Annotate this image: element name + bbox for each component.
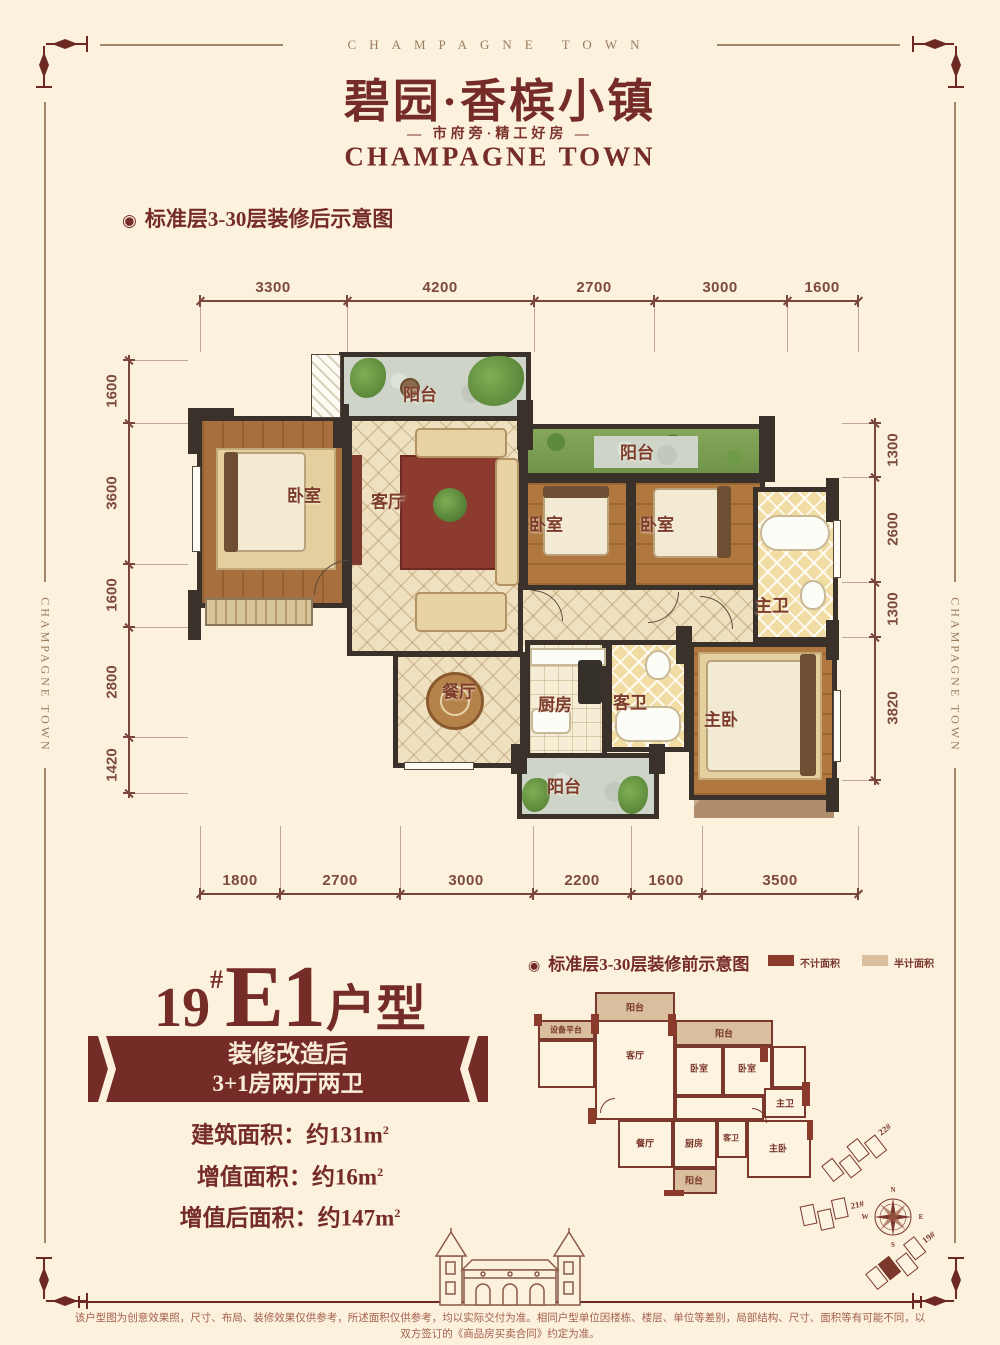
area-value: 约131m (306, 1123, 383, 1148)
frame-left-line-bottom (44, 768, 46, 1243)
room-label-balcony-top: 阳台 (403, 381, 437, 406)
unit-hash: # (210, 965, 223, 995)
area-value: 约16m (312, 1164, 377, 1189)
dim-label: 2700 (322, 872, 357, 889)
area-sup: 2 (383, 1123, 389, 1137)
dim-tick (869, 779, 881, 781)
before-label-master-bedroom: 主卧 (769, 1142, 787, 1155)
before-corridor (772, 1046, 806, 1088)
dim-extension (134, 627, 188, 628)
dim-label: 2800 (104, 665, 121, 698)
tv-cabinet-illustration (352, 455, 362, 565)
dim-extension (134, 423, 188, 424)
dim-label: 3000 (702, 279, 737, 296)
corner-ornament-bottom-left (30, 1245, 100, 1315)
window-symbol (833, 520, 841, 578)
bullet-icon: ◉ (528, 959, 540, 974)
after-plan-section-title: ◉标准层3-30层装修后示意图 (122, 203, 393, 233)
bathtub-illustration (760, 515, 830, 551)
dim-label: 2200 (564, 872, 599, 889)
before-hall (675, 1096, 764, 1120)
dim-extension (134, 564, 188, 565)
unit-code: E1 (225, 964, 324, 1033)
master-bedroom-marble-strip (694, 798, 834, 818)
room-label-master-bath: 主卫 (755, 592, 789, 617)
dim-extension (858, 306, 859, 352)
frame-left-line-top (44, 102, 46, 582)
area-label: 建筑面积： (191, 1123, 306, 1148)
dim-extension (200, 306, 201, 352)
window-symbol (833, 690, 841, 762)
dim-extension (200, 826, 201, 888)
unit-type-suffix: 户型 (326, 986, 426, 1034)
dim-extension (533, 826, 534, 888)
dim-extension (842, 582, 870, 583)
dim-label: 1600 (104, 374, 121, 407)
dim-label: 1600 (804, 279, 839, 296)
dim-tick (532, 888, 534, 900)
legend-swatch-no-area (768, 955, 794, 966)
dim-label: 1600 (104, 578, 121, 611)
dim-label: 3600 (104, 476, 121, 509)
area-row: 建筑面积：约131m2 (100, 1112, 480, 1154)
room-label-bedroom-right: 卧室 (640, 511, 674, 536)
building-unit (800, 1204, 818, 1226)
dim-extension (134, 737, 188, 738)
room-label-master-bedroom: 主卧 (704, 706, 738, 731)
stove-illustration (578, 660, 602, 704)
project-tagline: — 市府旁·精工好房 — (407, 123, 593, 143)
before-wall-piece (668, 1014, 676, 1036)
sofa-illustration (415, 592, 507, 632)
compass-s: S (891, 1241, 895, 1249)
window-symbol (404, 762, 474, 770)
room-label-kitchen: 厨房 (538, 691, 572, 716)
room-label-living: 客厅 (371, 488, 405, 513)
dim-extension (534, 306, 535, 352)
banner-line2: 3+1房两厅两卫 (212, 1070, 363, 1098)
before-wall-piece (534, 1014, 542, 1026)
before-wall-piece (802, 1082, 810, 1106)
dim-label: 1800 (222, 872, 257, 889)
before-label-balcony-bottom: 阳台 (685, 1174, 703, 1187)
dim-extension (787, 306, 788, 352)
dim-tick (630, 888, 632, 900)
dim-tick (701, 888, 703, 900)
area-info: 建筑面积：约131m2 增值面积：约16m2 增值后面积：约147m2 (100, 1112, 480, 1237)
wall-pier (649, 744, 665, 774)
dim-extension (654, 306, 655, 352)
dim-extension (134, 793, 188, 794)
room-label-bedroom-middle: 卧室 (529, 511, 563, 536)
toilet-illustration (800, 580, 826, 610)
dim-extension (842, 477, 870, 478)
wardrobe-illustration (205, 598, 313, 626)
compass-e: E (919, 1213, 924, 1221)
wall-pier (759, 416, 775, 482)
wall-pier (188, 408, 201, 454)
after-plan-section-label: 标准层3-30层装修后示意图 (145, 207, 394, 231)
legend-label-no-area: 不计面积 (800, 955, 840, 970)
building-label: 22# (876, 1121, 893, 1137)
sofa-illustration (415, 428, 507, 458)
dim-line-top (200, 300, 858, 302)
unit-title: 19 # E1 户型 (95, 955, 485, 1033)
room-label-dining: 餐厅 (442, 678, 476, 703)
dim-extension (631, 826, 632, 888)
before-side-space (538, 1040, 595, 1088)
wall-pier (826, 478, 839, 522)
legend-swatch-half-area (862, 955, 888, 966)
room-label-bedroom-left: 卧室 (287, 482, 321, 507)
corner-ornament-top-left (30, 30, 100, 100)
building-cluster-21: 21# (799, 1194, 866, 1227)
dim-label: 1600 (648, 872, 683, 889)
project-subtitle-en: CHAMPAGNE TOWN (344, 142, 655, 173)
headboard-illustration (717, 486, 731, 558)
area-sup: 2 (394, 1206, 400, 1220)
building-unit (817, 1208, 835, 1230)
before-label-bedroom-b: 卧室 (738, 1062, 756, 1075)
bullet-icon: ◉ (122, 211, 137, 230)
castle-illustration (420, 1228, 600, 1311)
frame-right-line-top (954, 102, 956, 582)
frame-top-line-right (717, 44, 900, 46)
before-label-balcony-right: 阳台 (715, 1027, 733, 1040)
dim-label: 1300 (885, 592, 902, 625)
dim-label: 3820 (885, 691, 902, 724)
legend-label-half-area: 半计面积 (894, 955, 934, 970)
dim-extension (858, 826, 859, 888)
dim-tick (869, 636, 881, 638)
sofa-illustration (495, 458, 519, 586)
wall-pier (517, 400, 533, 450)
room-label-guest-bath: 客卫 (613, 689, 647, 714)
room-label-balcony-right: 阳台 (620, 439, 654, 464)
footer-rule-cap-left (78, 1296, 80, 1308)
wall-pier (188, 590, 201, 640)
corner-ornament-top-right (900, 30, 970, 100)
before-plan-section-label: 标准层3-30层装修前示意图 (548, 955, 749, 974)
wall-pier (676, 626, 692, 664)
dim-extension (842, 423, 870, 424)
before-label-kitchen: 厨房 (685, 1137, 703, 1150)
area-row: 增值面积：约16m2 (100, 1154, 480, 1196)
dim-tick (279, 888, 281, 900)
before-label-living: 客厅 (626, 1049, 644, 1062)
plant-illustration (433, 488, 467, 522)
compass-w: W (862, 1213, 869, 1221)
before-label-equipment: 设备平台 (550, 1025, 582, 1036)
building-label: 19# (920, 1229, 937, 1245)
dim-extension (400, 826, 401, 888)
room-label-balcony-bottom: 阳台 (547, 773, 581, 798)
before-wall-piece (591, 1014, 599, 1034)
building-label: 21# (850, 1198, 865, 1211)
wall-pier (511, 744, 527, 774)
footer-rule-cap-right (920, 1296, 922, 1308)
dim-tick (869, 476, 881, 478)
frame-banner-text: CHAMPAGNE TOWN (348, 37, 653, 53)
building-cluster-22: 22# (820, 1117, 896, 1182)
dim-tick (869, 581, 881, 583)
wall-pier (826, 778, 839, 812)
before-label-guest-bath: 客卫 (723, 1133, 739, 1144)
frame-top-line-left (100, 44, 283, 46)
disclaimer-text: 该户型图为创意效果照，尺寸、布局、装修效果仅供参考，所述面积仅供参考，均以实际交… (70, 1311, 930, 1343)
dim-label: 2600 (885, 512, 902, 545)
before-plan-section-title: ◉标准层3-30层装修前示意图 (528, 950, 749, 975)
dim-line-bottom (200, 893, 858, 895)
dim-extension (280, 826, 281, 888)
dim-extension (134, 360, 188, 361)
before-wall-piece (760, 1046, 768, 1062)
wall-pier (826, 620, 839, 660)
dim-tick (869, 422, 881, 424)
dim-label: 3500 (762, 872, 797, 889)
compass-rose-icon (871, 1195, 915, 1239)
before-label-bedroom-a: 卧室 (690, 1062, 708, 1075)
project-title: 碧园·香槟小镇 (344, 65, 656, 131)
dim-extension (842, 637, 870, 638)
frame-side-text-left: CHAMPAGNE TOWN (38, 597, 53, 752)
dim-line-right (874, 418, 876, 785)
dim-label: 4200 (422, 279, 457, 296)
dim-label: 3300 (255, 279, 290, 296)
frame-side-text-right: CHAMPAGNE TOWN (948, 597, 963, 752)
dim-label: 1420 (104, 748, 121, 781)
headboard-illustration (800, 654, 816, 776)
compass-n: N (890, 1186, 895, 1194)
dim-tick (399, 888, 401, 900)
dim-extension (347, 306, 348, 352)
poster-page: CHAMPAGNE TOWN CHAMPAGNE TOWN CHAMPAGNE … (0, 0, 1000, 1345)
dim-label: 1300 (885, 433, 902, 466)
headboard-illustration (543, 486, 609, 498)
toilet-illustration (645, 650, 671, 680)
area-value: 约147m (318, 1206, 395, 1231)
dim-extension (702, 826, 703, 888)
before-wall-piece (807, 1120, 813, 1140)
dim-extension (842, 780, 870, 781)
dim-tick (857, 888, 859, 900)
before-label-balcony-top: 阳台 (626, 1001, 644, 1014)
unit-building-number: 19 (154, 983, 210, 1033)
before-wall-piece (664, 1190, 684, 1196)
dim-label: 3000 (448, 872, 483, 889)
dim-label: 2700 (576, 279, 611, 296)
area-label: 增值面积： (197, 1164, 312, 1189)
before-label-dining: 餐厅 (636, 1137, 654, 1150)
before-wall-piece (588, 1108, 596, 1124)
area-label: 增值后面积： (180, 1206, 318, 1231)
window-symbol (192, 466, 201, 552)
dim-tick (199, 888, 201, 900)
window-symbol (311, 354, 341, 418)
area-sup: 2 (377, 1165, 383, 1179)
building-unit (831, 1197, 849, 1219)
headboard-illustration (224, 452, 238, 552)
frame-right-line-bottom (954, 768, 956, 1243)
before-label-master-bath: 主卫 (776, 1097, 794, 1110)
